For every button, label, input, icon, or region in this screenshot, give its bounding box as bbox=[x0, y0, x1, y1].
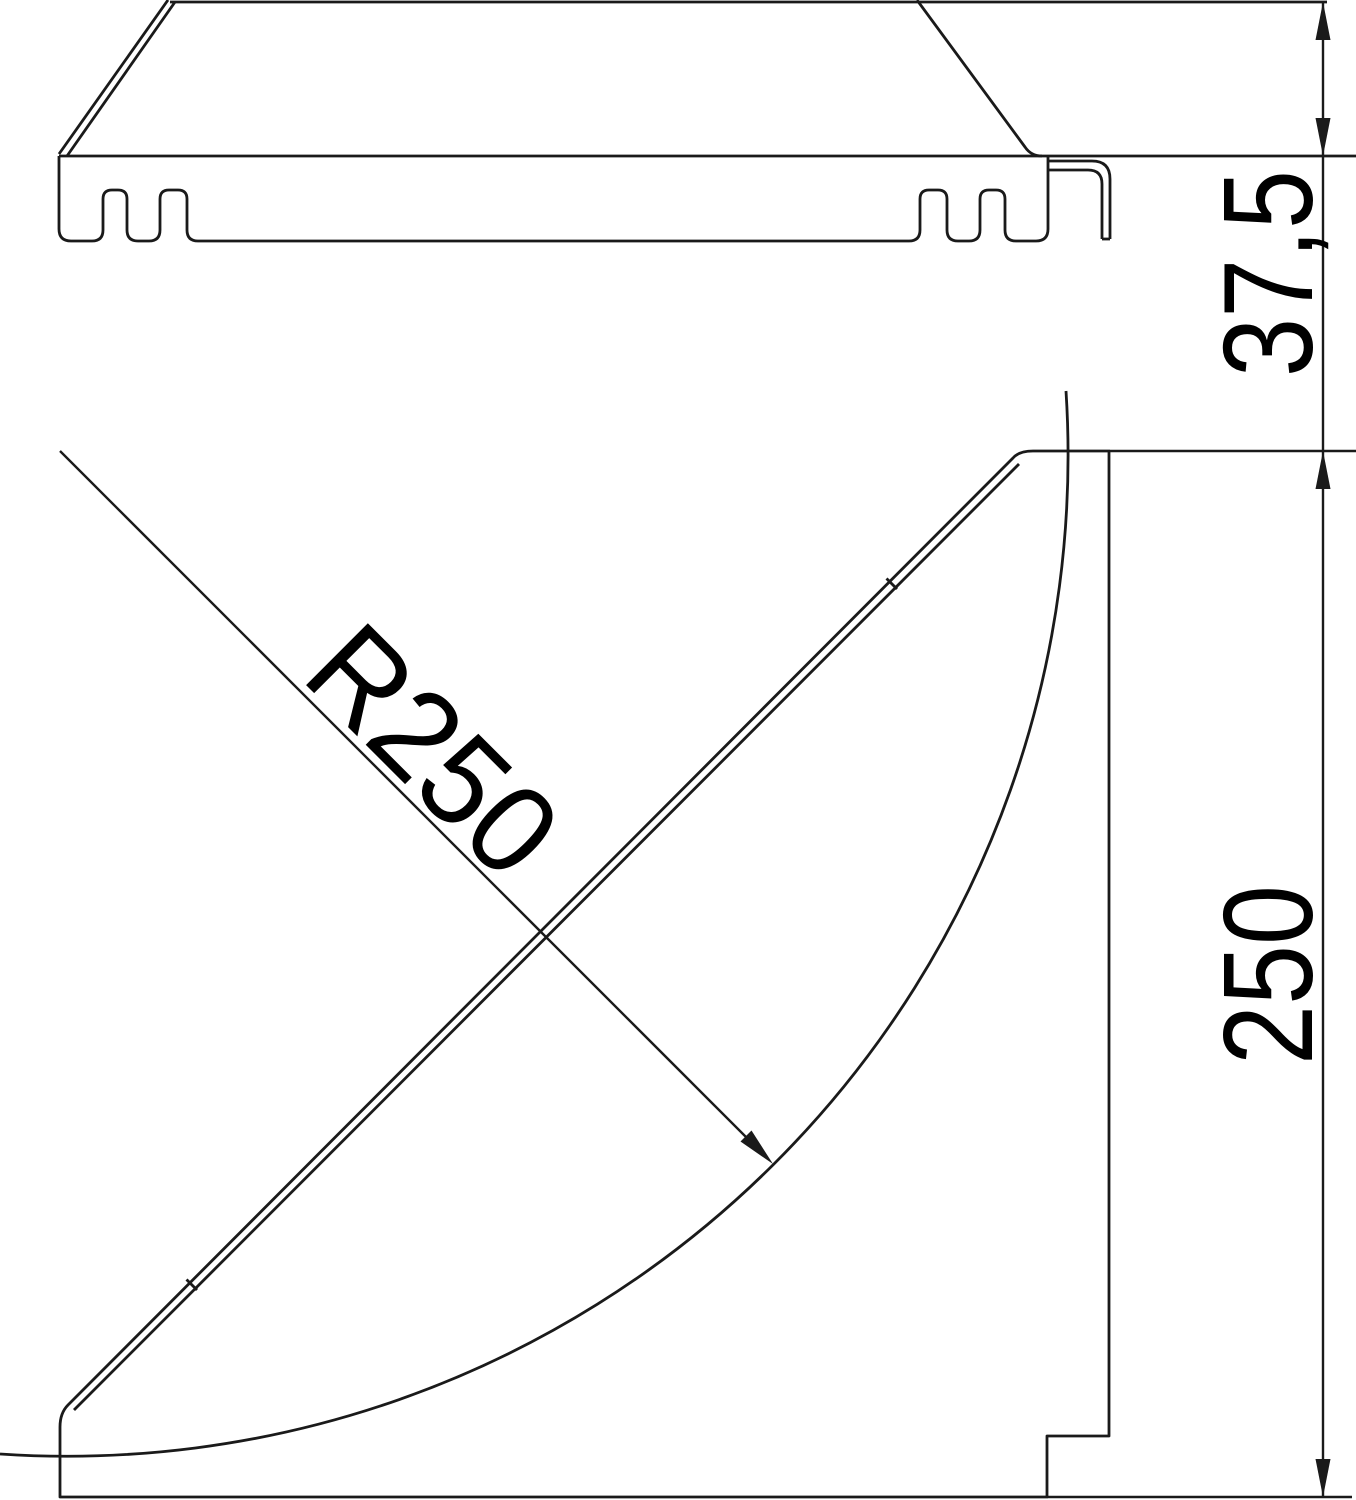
dimension-label-r250: R250 bbox=[280, 597, 587, 904]
arrow-37-5-down bbox=[1316, 118, 1331, 156]
technical-drawing-svg: 37,5 R250 250 bbox=[0, 0, 1356, 1500]
wall-outer-slant-line bbox=[59, 0, 168, 154]
plate-profile-path bbox=[59, 156, 1048, 241]
arrow-250-down bbox=[1316, 1459, 1331, 1497]
wall-right-slant-line bbox=[917, 0, 1042, 156]
rail-hook-inner-path bbox=[1048, 170, 1102, 239]
drawing-canvas: 37,5 R250 250 bbox=[0, 0, 1356, 1500]
dimension-label-37-5: 37,5 bbox=[1197, 170, 1339, 377]
arrow-250-up bbox=[1316, 451, 1331, 489]
dimension-label-250: 250 bbox=[1197, 885, 1339, 1065]
wall-inner-slant-line bbox=[67, 2, 175, 156]
dimensions: 37,5 R250 250 bbox=[60, 2, 1356, 1497]
arrow-37-5-up bbox=[1316, 2, 1331, 40]
section-view bbox=[59, 0, 1356, 241]
